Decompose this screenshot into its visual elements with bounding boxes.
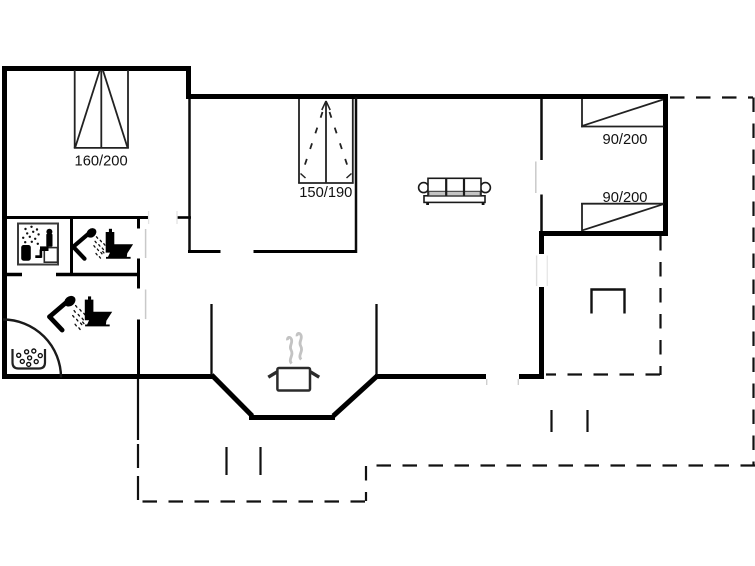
svg-text:160/200: 160/200 <box>75 154 128 170</box>
svg-text:90/200: 90/200 <box>603 190 648 206</box>
svg-text:150/190: 150/190 <box>299 185 352 201</box>
svg-text:90/200: 90/200 <box>603 132 648 148</box>
